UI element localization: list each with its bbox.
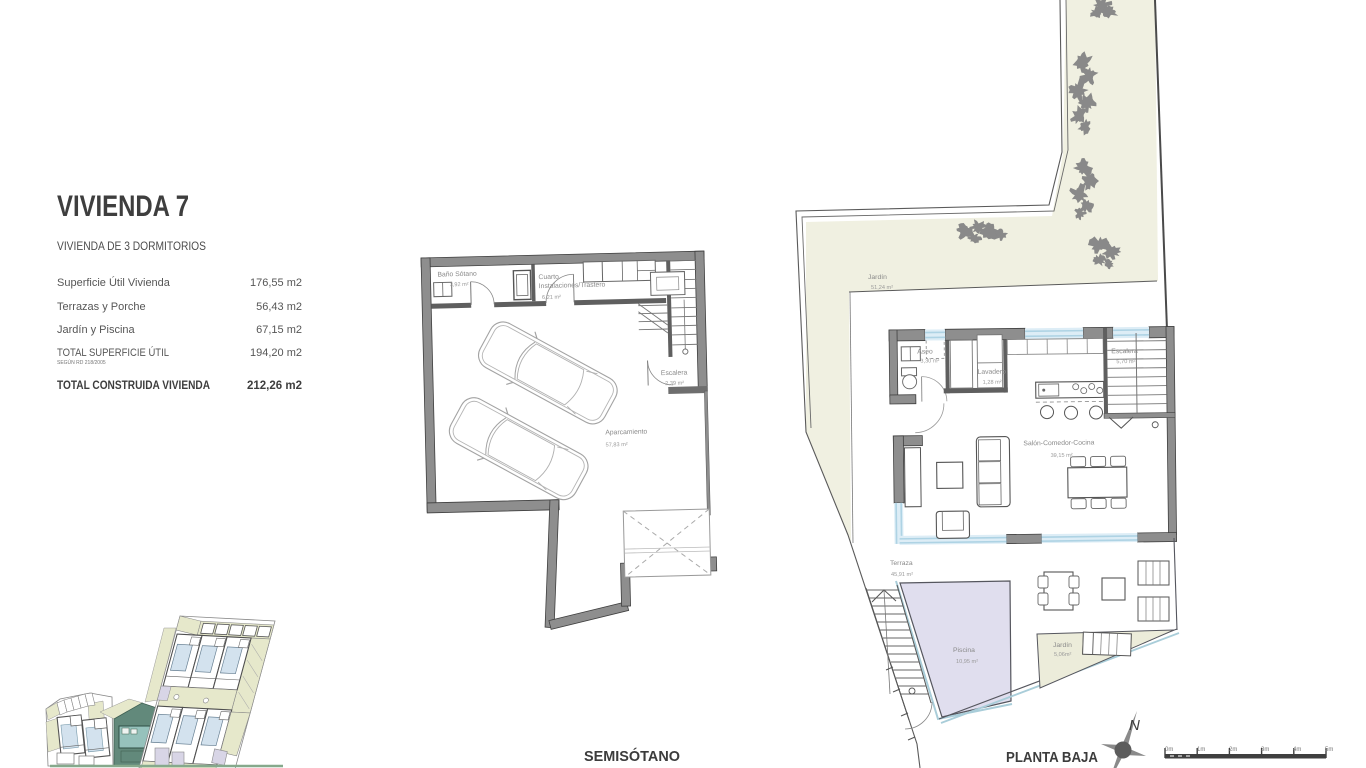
svg-text:N: N: [1129, 717, 1140, 734]
svg-text:Terrazas y Porche: Terrazas y Porche: [57, 301, 146, 313]
svg-text:176,55 m2: 176,55 m2: [250, 277, 302, 289]
svg-text:Jardín y Piscina: Jardín y Piscina: [57, 324, 136, 336]
svg-text:1m: 1m: [1197, 747, 1205, 753]
svg-text:Superficie Útil Vivienda: Superficie Útil Vivienda: [57, 276, 171, 289]
svg-text:SEMISÓTANO: SEMISÓTANO: [584, 747, 680, 765]
svg-text:Cuarto: Cuarto: [538, 274, 559, 282]
svg-text:VIVIENDA 7: VIVIENDA 7: [57, 190, 189, 223]
svg-text:Salón-Comedor-Cocina: Salón-Comedor-Cocina: [1023, 439, 1094, 447]
svg-text:5,06m²: 5,06m²: [1054, 652, 1072, 658]
svg-text:2,39 m²: 2,39 m²: [665, 381, 684, 387]
svg-text:39,15 m²: 39,15 m²: [1051, 453, 1073, 459]
svg-text:5m: 5m: [1325, 747, 1333, 753]
svg-text:1,28 m²: 1,28 m²: [983, 380, 1002, 386]
svg-text:TOTAL SUPERFICIE ÚTIL: TOTAL SUPERFICIE ÚTIL: [57, 346, 169, 359]
svg-text:45,91 m²: 45,91 m²: [891, 572, 913, 578]
svg-text:PLANTA BAJA: PLANTA BAJA: [1006, 749, 1098, 766]
svg-text:67,15 m2: 67,15 m2: [256, 324, 302, 336]
svg-text:0m: 0m: [1165, 747, 1173, 753]
svg-text:Jardín: Jardín: [1053, 642, 1072, 649]
svg-text:Jardín: Jardín: [868, 274, 887, 281]
svg-text:Lavadero: Lavadero: [977, 369, 1006, 376]
svg-text:TOTAL CONSTRUIDA VIVIENDA: TOTAL CONSTRUIDA VIVIENDA: [57, 380, 210, 392]
svg-text:212,26 m2: 212,26 m2: [247, 380, 302, 392]
svg-text:3m: 3m: [1261, 747, 1269, 753]
svg-text:Escalera: Escalera: [1111, 348, 1138, 355]
svg-text:VIVIENDA DE 3 DORMITORIOS: VIVIENDA DE 3 DORMITORIOS: [57, 241, 206, 253]
svg-text:194,20 m2: 194,20 m2: [250, 347, 302, 359]
svg-text:Piscina: Piscina: [953, 647, 975, 654]
svg-text:SEGÚN RD 218/2005: SEGÚN RD 218/2005: [57, 359, 106, 366]
svg-text:Baño Sótano: Baño Sótano: [437, 271, 477, 279]
svg-text:Escalera: Escalera: [661, 370, 688, 378]
svg-text:4m: 4m: [1293, 747, 1301, 753]
svg-text:6,21 m²: 6,21 m²: [542, 295, 561, 301]
svg-text:Terraza: Terraza: [890, 560, 913, 567]
svg-text:Aparcamiento: Aparcamiento: [605, 429, 647, 437]
svg-text:5,70 m²: 5,70 m²: [1116, 359, 1135, 365]
svg-text:10,95 m²: 10,95 m²: [956, 659, 978, 665]
svg-text:3,30 m²: 3,30 m²: [920, 358, 939, 364]
svg-text:57,83 m²: 57,83 m²: [606, 442, 628, 449]
svg-text:51,24 m²: 51,24 m²: [871, 285, 893, 291]
svg-text:3,92 m²: 3,92 m²: [450, 282, 469, 288]
svg-text:2m: 2m: [1229, 747, 1237, 753]
svg-text:56,43 m2: 56,43 m2: [256, 301, 302, 313]
svg-text:Aseo: Aseo: [917, 348, 933, 355]
